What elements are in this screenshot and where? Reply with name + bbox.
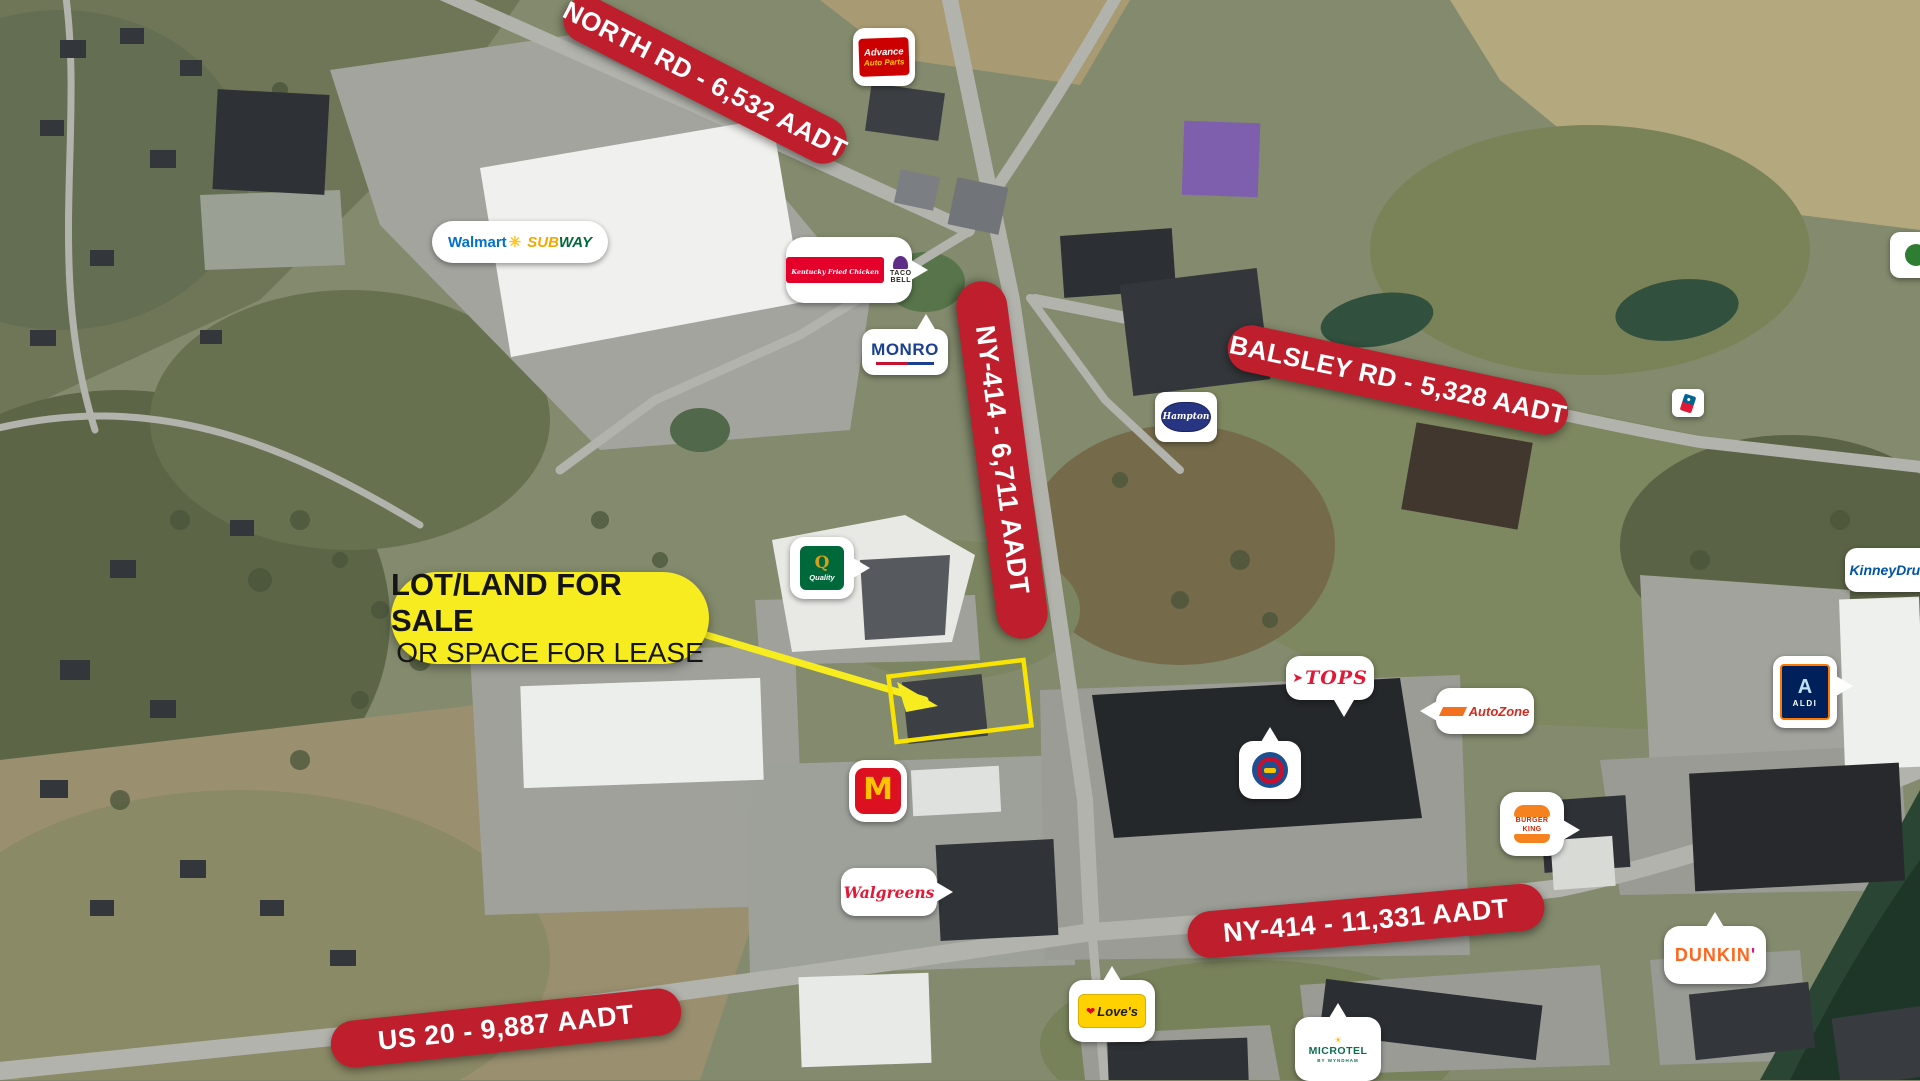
badge-tail: [1103, 966, 1121, 981]
aldi-name: ALDI: [1793, 699, 1818, 708]
walmart-subway-badge: Walmart ✳ SUB WAY: [432, 221, 608, 263]
badge-tail: [1563, 820, 1580, 840]
plaza-circle-logo: [1252, 752, 1288, 788]
quality-name: Quality: [809, 573, 834, 582]
tacobell-line2: BELL: [890, 277, 911, 284]
hampton-badge: Hampton: [1155, 392, 1217, 442]
microtel-subtext: BY WYNDHAM: [1317, 1058, 1358, 1063]
subway-way: WAY: [559, 234, 592, 251]
advance-auto-parts-logo: Advance Auto Parts: [858, 37, 909, 77]
tops-logo: TOPS: [1305, 667, 1368, 689]
walmart-logo: Walmart: [448, 234, 507, 251]
plaza-circle-text-mark: [1264, 768, 1276, 773]
kfc-label: Kentucky Fried Chicken: [791, 268, 879, 276]
dominos-badge: [1672, 389, 1704, 417]
badge-tail: [1706, 912, 1724, 927]
quality-q: Q: [815, 555, 830, 572]
badge-tail: [917, 314, 935, 329]
tacobell-logo: TACO BELL: [890, 256, 912, 285]
for-sale-callout: LOT/LAND FOR SALE OR SPACE FOR LEASE: [391, 572, 709, 664]
badge-tail: [853, 558, 870, 578]
subway-logo: SUB WAY: [527, 234, 592, 251]
loves-logo: ❤ Love's: [1078, 994, 1146, 1028]
dunkin-logo: DUNKIN: [1675, 945, 1751, 966]
microtel-logo: MICROTEL: [1309, 1045, 1368, 1057]
loves-heart-icon: ❤: [1086, 1005, 1095, 1018]
walgreens-badge: Walgreens: [841, 868, 937, 916]
subway-sub: SUB: [527, 234, 559, 251]
kinney-drugs-logo: KinneyDrugs: [1849, 562, 1920, 578]
partial-green-badge: [1890, 232, 1920, 278]
advance-line2: Auto Parts: [864, 57, 905, 67]
walmart-spark-icon: ✳: [509, 233, 522, 251]
quality-inn-badge: Q Quality: [790, 537, 854, 599]
microtel-badge: ☀ MICROTEL BY WYNDHAM: [1295, 1017, 1381, 1081]
aldi-a: A: [1798, 677, 1812, 697]
monro-logo: MONRO: [871, 340, 939, 360]
burger-king-line2: KING: [1522, 826, 1541, 834]
badge-tail: [1261, 727, 1279, 742]
badge-tail: [1329, 1003, 1347, 1018]
plaza-circle-ring: [1257, 757, 1284, 784]
tacobell-bell-icon: [893, 256, 908, 269]
badge-tail: [1420, 701, 1437, 721]
loves-name: Love's: [1097, 1004, 1138, 1019]
aldi-logo: A ALDI: [1780, 664, 1830, 720]
mcdonalds-badge: M: [849, 760, 907, 822]
mcdonalds-arches: M: [863, 775, 893, 805]
burger-king-badge: BURGER KING: [1500, 792, 1564, 856]
autozone-logo: AutoZone: [1469, 704, 1530, 719]
green-logo: [1905, 244, 1920, 266]
aldi-badge: A ALDI: [1773, 656, 1837, 728]
badge-tail: [936, 882, 953, 902]
tops-arrow-icon: ➤: [1292, 670, 1303, 686]
plaza-circle-inner: [1261, 761, 1279, 779]
advance-auto-parts-badge: Advance Auto Parts: [853, 28, 915, 86]
plaza-circle-badge: [1239, 741, 1301, 799]
monro-badge: MONRO: [862, 329, 948, 375]
callout-leader-arrow: [897, 682, 938, 712]
for-sale-callout-line1: LOT/LAND FOR SALE: [391, 567, 709, 638]
aerial-map: NORTH RD - 6,532 AADT NY-414 - 6,711 AAD…: [0, 0, 1920, 1080]
badge-tail: [911, 260, 928, 280]
annotation-overlay: [0, 0, 1920, 1080]
for-sale-callout-line2: OR SPACE FOR LEASE: [396, 638, 704, 669]
microtel-sun-icon: ☀: [1334, 1036, 1342, 1045]
loves-badge: ❤ Love's: [1069, 980, 1155, 1042]
monro-underline: [876, 362, 934, 365]
dunkin-apostrophe: ': [1751, 945, 1755, 966]
dunkin-badge: DUNKIN ': [1664, 926, 1766, 984]
burger-king-bun-top-icon: [1514, 805, 1550, 817]
kfc-tacobell-badge: Kentucky Fried Chicken TACO BELL: [786, 237, 912, 303]
kfc-logo: Kentucky Fried Chicken: [786, 257, 884, 283]
burger-king-line1: BURGER: [1516, 817, 1549, 825]
autozone-stripe-icon: [1439, 707, 1467, 716]
badge-tail: [1334, 700, 1354, 717]
quality-inn-logo: Q Quality: [800, 546, 844, 590]
dominos-logo: [1680, 393, 1697, 413]
burger-king-bun-bottom-icon: [1514, 834, 1550, 843]
tacobell-line1: TACO: [890, 270, 912, 277]
hampton-label: Hampton: [1163, 412, 1210, 422]
kinney-drugs-badge: KinneyDrugs: [1845, 548, 1920, 592]
tops-badge: ➤ TOPS: [1286, 656, 1374, 700]
walgreens-logo: Walgreens: [844, 883, 935, 902]
hampton-logo: Hampton: [1161, 402, 1211, 432]
badge-tail: [1836, 676, 1853, 696]
autozone-badge: AutoZone: [1436, 688, 1534, 734]
mcdonalds-logo: M: [855, 768, 901, 814]
